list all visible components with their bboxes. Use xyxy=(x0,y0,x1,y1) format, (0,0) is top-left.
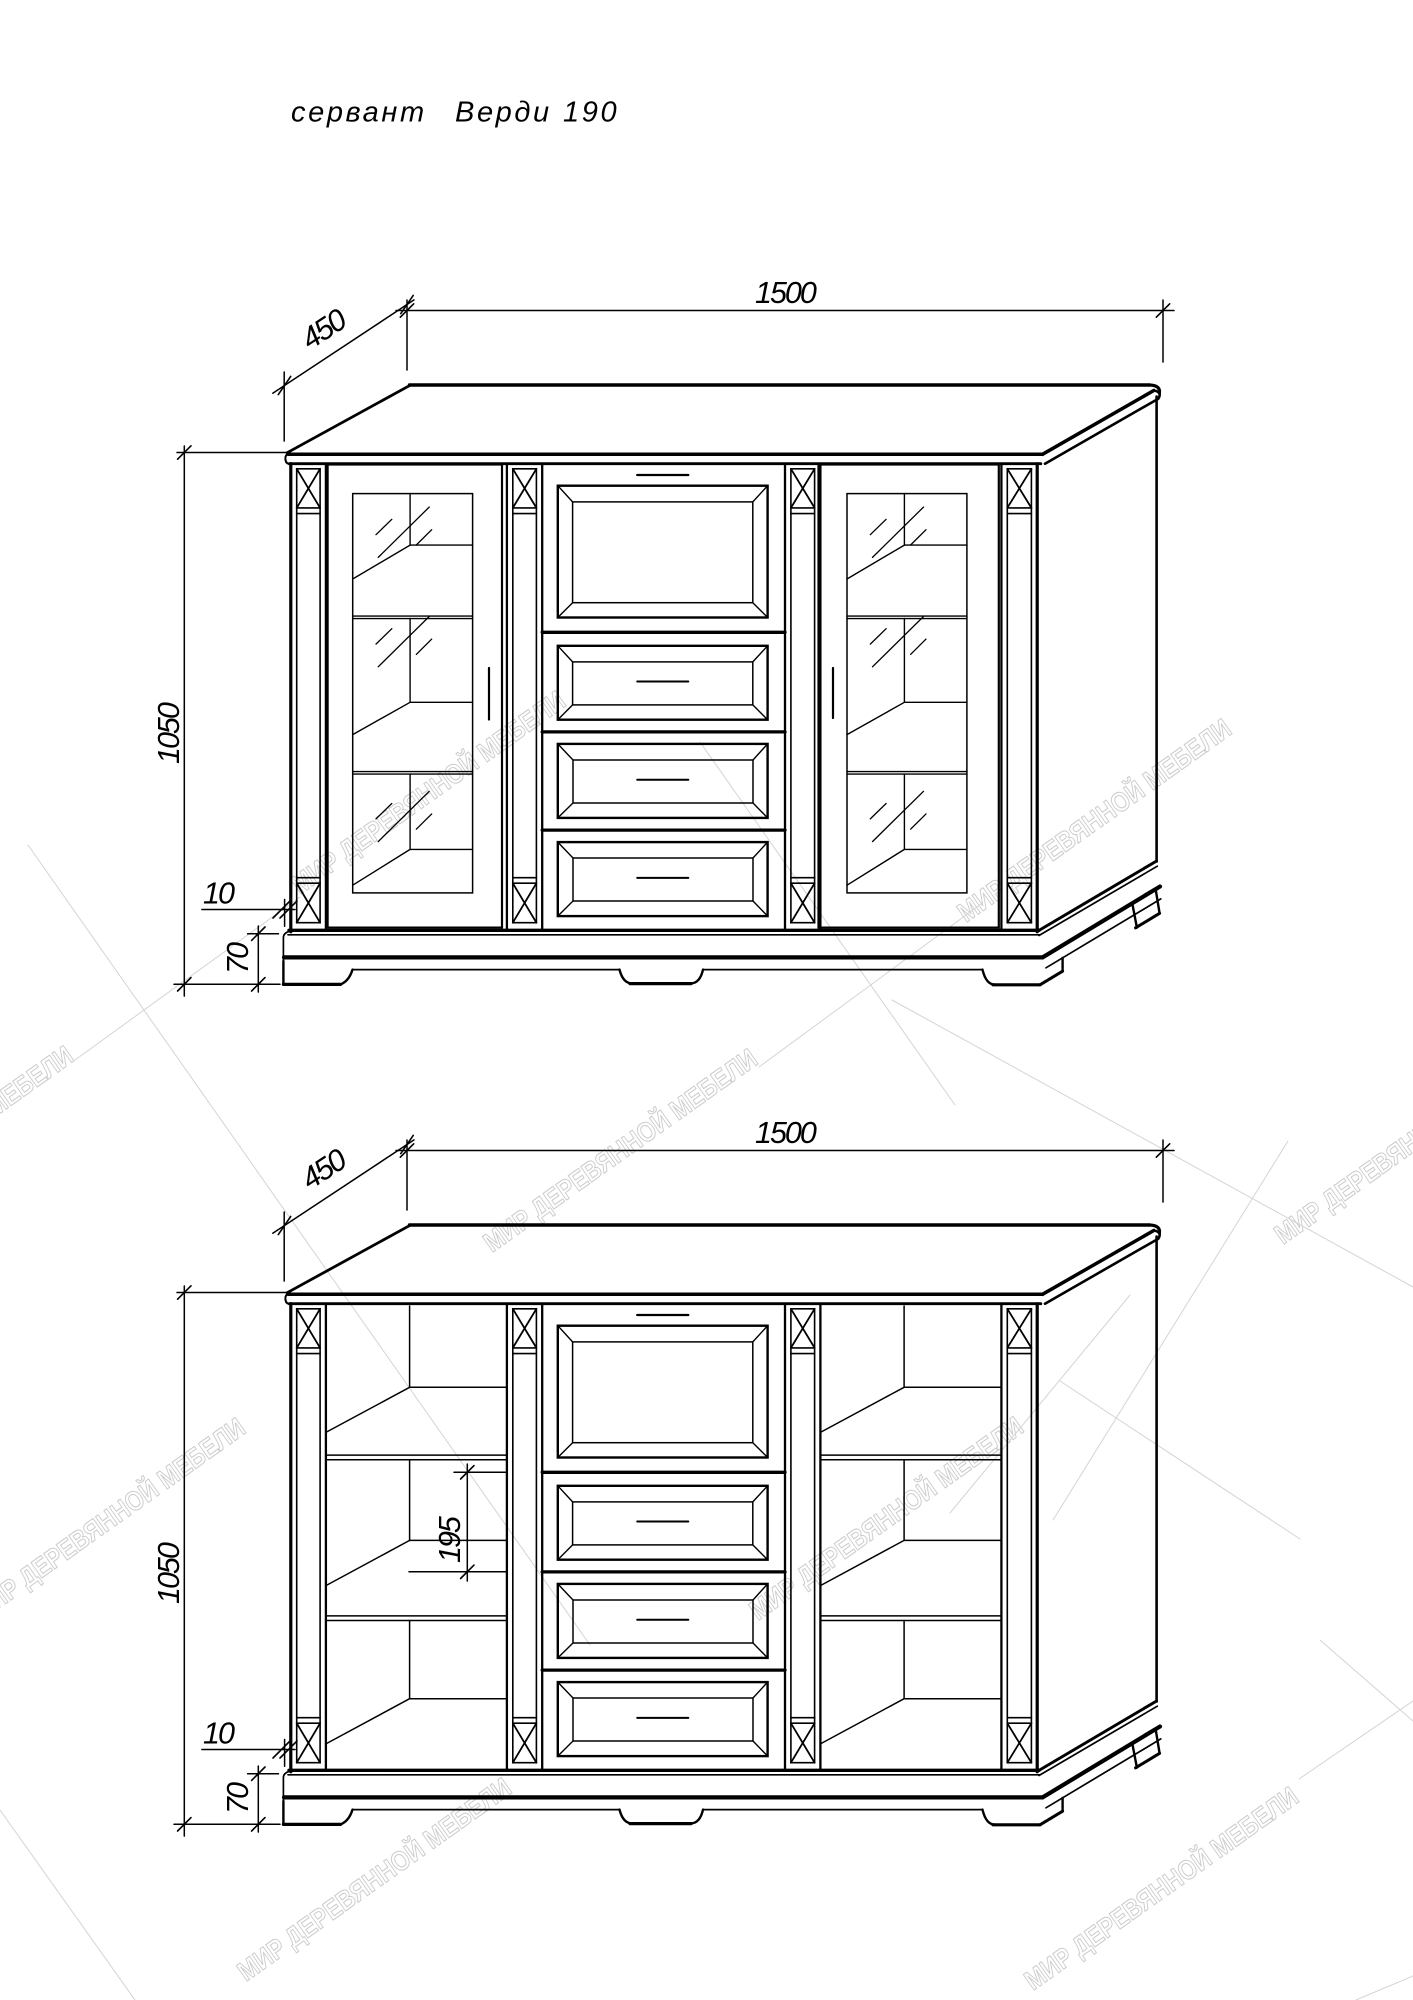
svg-text:1050: 1050 xyxy=(152,1542,186,1604)
svg-text:10: 10 xyxy=(203,877,235,911)
svg-text:70: 70 xyxy=(221,942,255,974)
svg-text:190: 190 xyxy=(563,97,619,129)
svg-text:1050: 1050 xyxy=(152,702,186,764)
svg-text:сервант: сервант xyxy=(291,97,427,129)
svg-text:70: 70 xyxy=(221,1782,255,1814)
svg-text:1500: 1500 xyxy=(755,1116,817,1150)
svg-text:195: 195 xyxy=(433,1515,467,1563)
svg-text:1500: 1500 xyxy=(755,276,817,310)
svg-text:10: 10 xyxy=(203,1717,235,1751)
svg-text:Верди: Верди xyxy=(455,97,552,129)
